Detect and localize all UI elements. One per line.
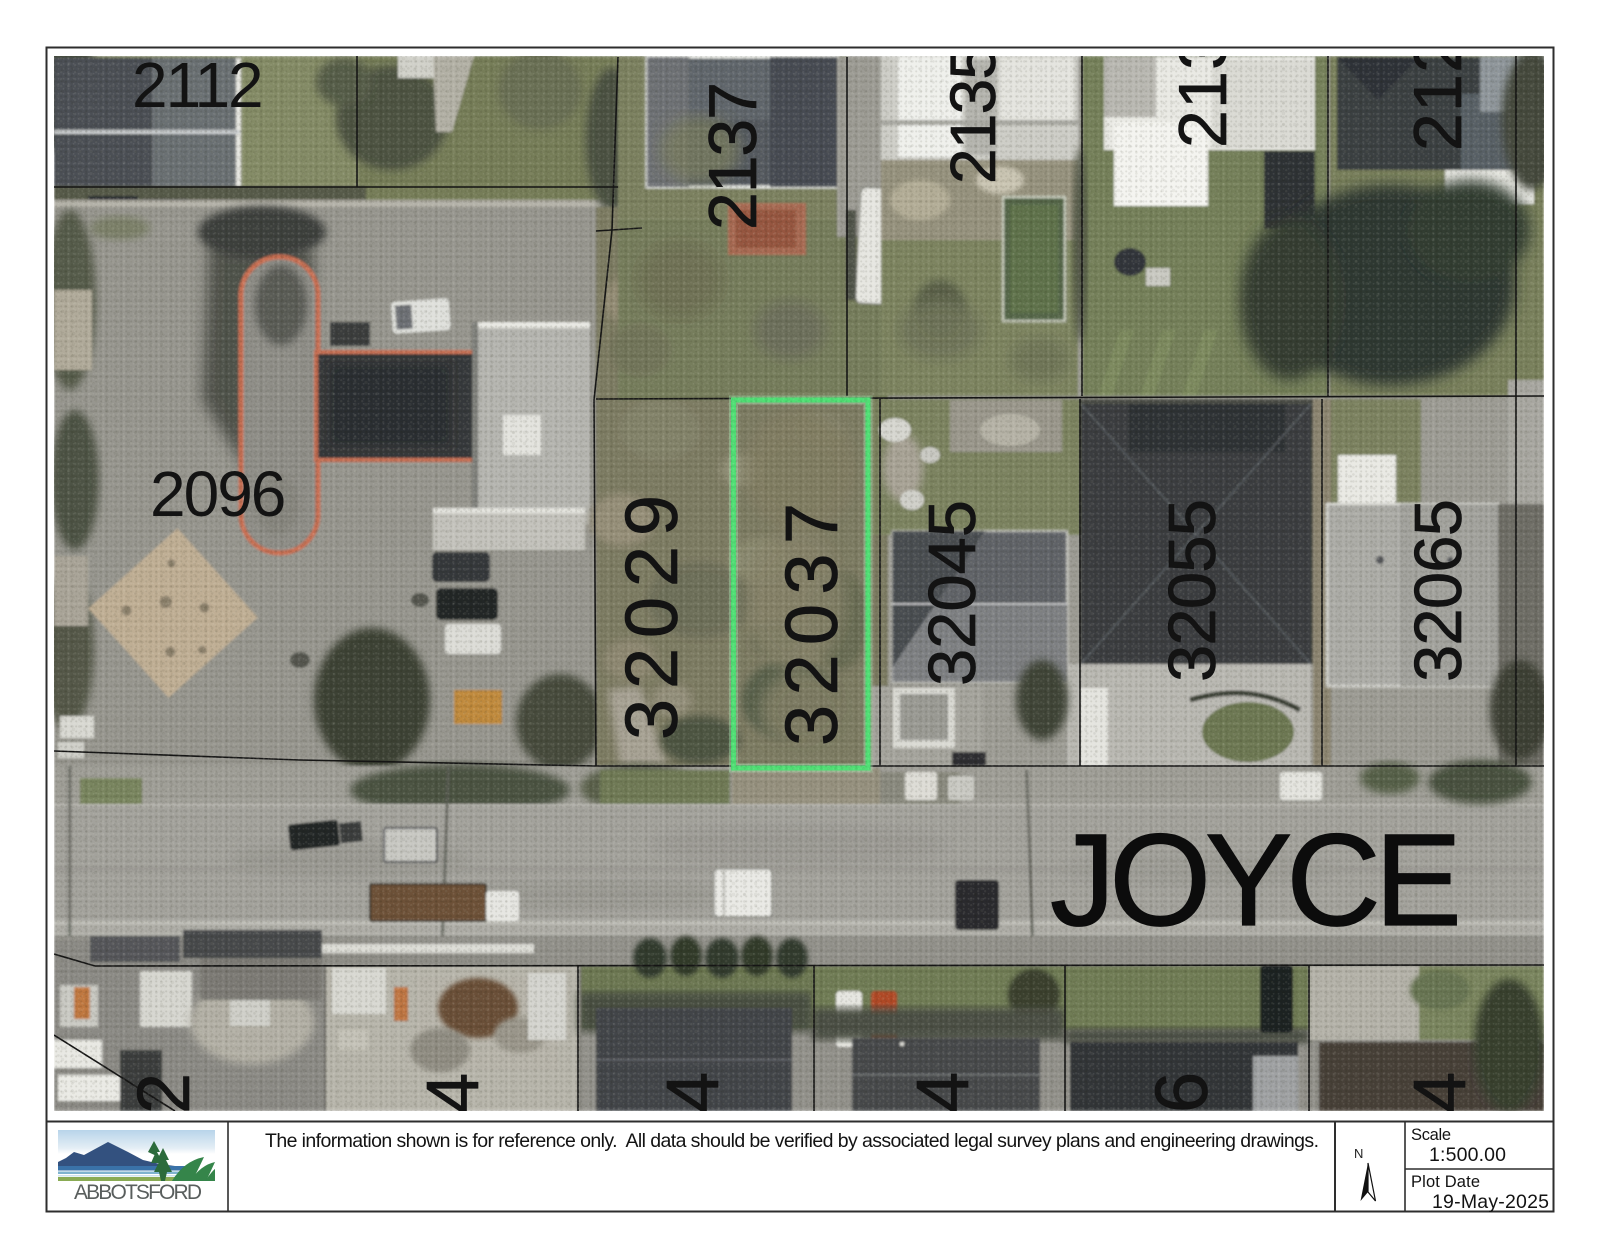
svg-text:32045: 32045 (915, 500, 990, 686)
svg-text:4: 4 (1398, 1072, 1481, 1113)
svg-text:6: 6 (1140, 1072, 1223, 1113)
svg-text:4: 4 (651, 1072, 734, 1113)
svg-text:32065: 32065 (1401, 499, 1476, 682)
svg-text:2135: 2135 (937, 44, 1009, 184)
svg-text:ABBOTSFORD: ABBOTSFORD (74, 1181, 202, 1204)
svg-text:4: 4 (411, 1073, 494, 1114)
svg-text:32029: 32029 (610, 495, 693, 740)
svg-text:2112: 2112 (132, 49, 262, 121)
svg-text:N: N (1354, 1146, 1363, 1161)
svg-text:JOYCE: JOYCE (1050, 806, 1462, 953)
svg-text:The information shown is for r: The information shown is for reference o… (265, 1130, 1319, 1152)
svg-text:Plot Date: Plot Date (1411, 1173, 1480, 1191)
svg-text:32055: 32055 (1155, 499, 1230, 682)
svg-text:1:500.00: 1:500.00 (1429, 1144, 1506, 1166)
svg-text:2: 2 (122, 1073, 205, 1114)
svg-text:2137: 2137 (695, 82, 771, 230)
svg-text:32037: 32037 (770, 503, 853, 746)
svg-text:2096: 2096 (150, 458, 284, 530)
svg-text:Scale: Scale (1411, 1126, 1451, 1144)
svg-text:19-May-2025: 19-May-2025 (1432, 1191, 1549, 1213)
svg-text:4: 4 (901, 1072, 984, 1113)
